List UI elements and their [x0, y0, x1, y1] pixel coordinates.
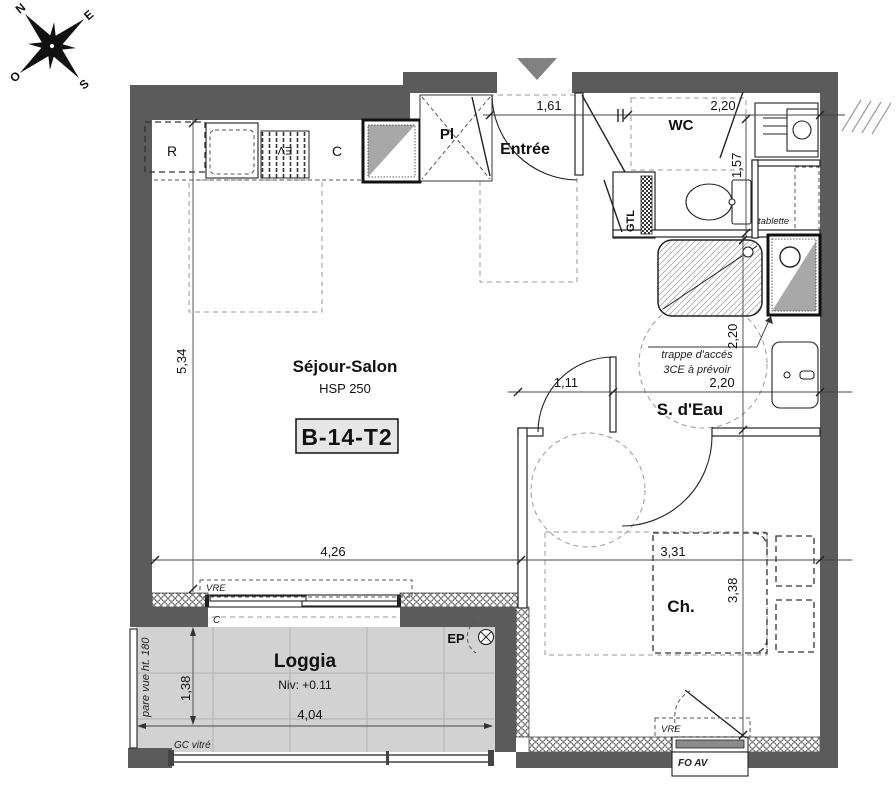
room-label-placard: Pl	[440, 126, 454, 143]
dim-sdeau-height: 2,20	[725, 324, 740, 349]
compass-o: O	[7, 68, 23, 85]
room-label-wc: WC	[669, 117, 694, 134]
dim-chambre-width: 3,31	[660, 544, 685, 559]
dim-sejour-width: 4,26	[320, 544, 345, 559]
gtl-panel	[641, 176, 652, 234]
room-label-entree: Entrée	[500, 141, 550, 158]
pillow-mark-1	[753, 533, 767, 547]
sejour-ceiling-height: HSP 250	[319, 381, 371, 396]
duct-riser-dashed	[795, 167, 819, 233]
room-label-loggia: Loggia	[274, 651, 337, 672]
vre-chambre-label: VRE	[661, 724, 681, 735]
kitchen-cooking-label: C	[332, 143, 342, 159]
pare-vue-screen	[130, 629, 137, 748]
kitchen-clearance-dashed	[189, 180, 322, 312]
sdeau-door-swing	[622, 436, 712, 526]
kitchen-fridge-label: R	[167, 143, 177, 159]
gc-vitre-label: GC vitré	[174, 740, 211, 751]
gtl-label: GTL	[625, 210, 637, 232]
sink-unit	[206, 123, 258, 178]
dim-sdeau-width: 2,20	[709, 375, 734, 390]
room-label-sdeau: S. d'Eau	[657, 400, 723, 419]
sill-label: C	[213, 615, 221, 626]
room-label-chambre: Ch.	[667, 597, 694, 616]
unit-code: B-14-T2	[301, 424, 392, 450]
pillow-mark-2	[753, 639, 767, 653]
nightstand-2	[776, 600, 814, 652]
dim-entree-width: 1,61	[536, 98, 561, 113]
party-wall-hatch	[842, 100, 891, 134]
entrance-door-swing	[492, 95, 577, 180]
dim-chambre-height: 3,38	[725, 578, 740, 603]
chambre-window-leaf	[685, 690, 746, 738]
dim-door-sejour: 1,11	[554, 375, 578, 390]
entree-zone-dashed	[480, 95, 577, 282]
trappe-note-line1: trappe d'accés	[661, 349, 733, 361]
pare-vue-label: pare vue ht. 180	[140, 637, 152, 718]
nightstand-1	[776, 536, 814, 586]
compass-s: S	[77, 76, 92, 92]
fo-av-label: FO AV	[678, 758, 709, 769]
dim-wc-height: 1,57	[729, 153, 744, 178]
entrance-arrow	[517, 58, 557, 80]
compass-rose: N E S O	[0, 0, 128, 124]
sdeau-fixtures	[538, 235, 820, 526]
dim-sejour-height: 5,34	[174, 349, 189, 374]
room-label-sejour: Séjour-Salon	[293, 357, 398, 376]
dim-loggia-depth: 1,38	[178, 676, 193, 701]
turning-circle-chambre	[531, 433, 645, 547]
compass-e: E	[81, 7, 96, 23]
dim-wc-width: 2,20	[710, 98, 735, 113]
trappe-arrowhead	[765, 316, 773, 324]
shower-head-symbol	[780, 247, 800, 267]
vre-sejour-label: VRE	[206, 583, 226, 594]
floor-plan: N E S O	[0, 0, 896, 800]
tablette-label: tablette	[758, 216, 789, 227]
dim-loggia-width: 4,04	[297, 707, 322, 722]
kitchen-sink-label: EV	[277, 144, 292, 156]
toilet-bowl	[686, 184, 732, 220]
chambre-door-swing	[538, 357, 613, 432]
wc-door-leaf	[582, 95, 625, 172]
loggia-level: Niv: +0.11	[278, 678, 332, 692]
floor-plan-page: N E S O	[0, 0, 896, 800]
compass-n: N	[13, 0, 29, 16]
shower-drain	[743, 247, 753, 257]
ep-label: EP	[447, 631, 465, 646]
